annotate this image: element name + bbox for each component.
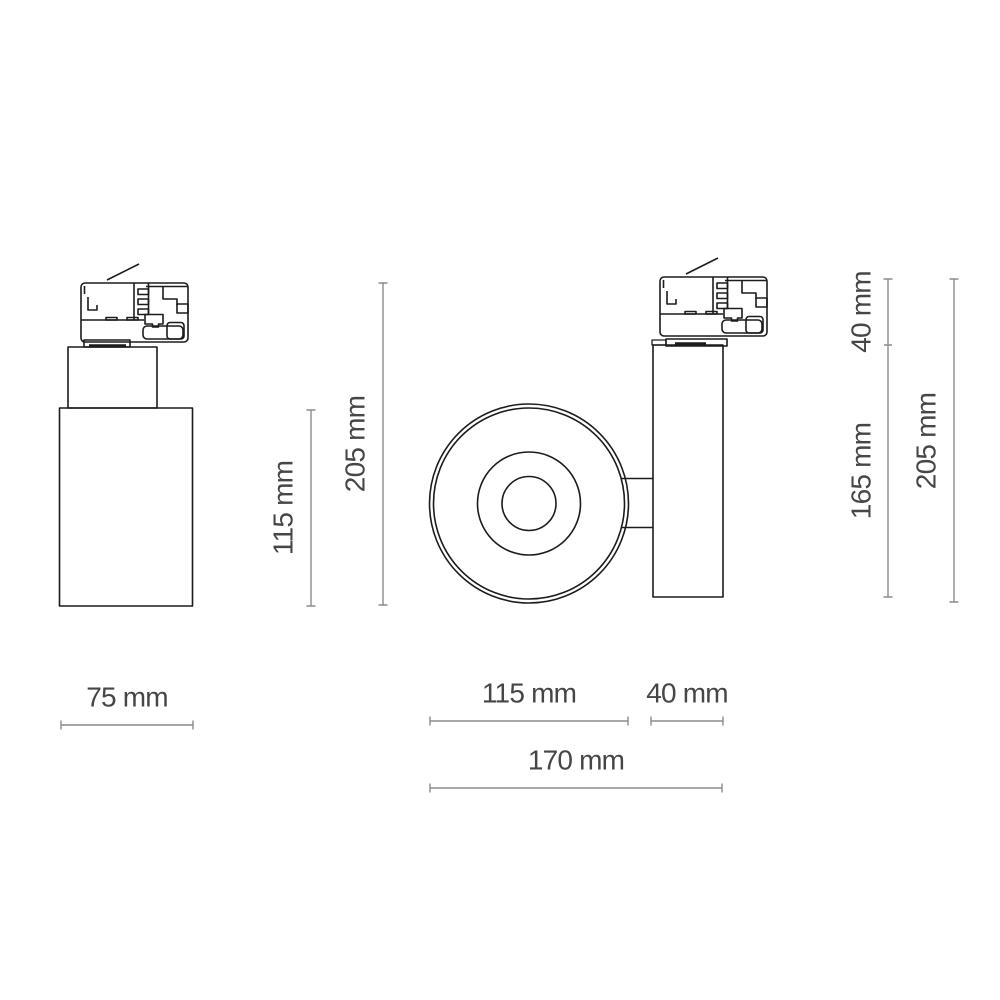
- dim-line-side-body-height: [307, 410, 316, 606]
- dim-line-side-overall-height: [379, 283, 388, 605]
- lens-reflector-ring: [478, 452, 581, 555]
- dim-line-front-arm-depth: [651, 717, 723, 726]
- spotlight-body-profile: [653, 345, 723, 597]
- lens-outer-rim: [430, 404, 629, 603]
- dim-label-front-head-diameter: 115 mm: [482, 678, 576, 709]
- front-view: [430, 404, 654, 603]
- dim-label-profile-overall-height: 205 mm: [911, 393, 942, 489]
- lens-inner-rim: [434, 408, 625, 599]
- track-adapter-icon: [81, 264, 188, 342]
- track-adapter-icon: [660, 258, 767, 336]
- dim-line-profile-overall-height: [950, 279, 959, 602]
- dim-line-side-body-width: [61, 721, 193, 730]
- side-view: [60, 264, 193, 606]
- dim-line-front-head-diameter: [430, 717, 628, 726]
- dim-line-front-overall-width: [430, 784, 722, 793]
- dim-label-front-arm-depth: 40 mm: [646, 678, 728, 709]
- dim-label-profile-housing-height: 165 mm: [846, 423, 877, 519]
- dim-label-side-body-width: 75 mm: [86, 682, 168, 713]
- dim-label-profile-adapter-height: 40 mm: [846, 271, 877, 353]
- drawing-canvas: 115 mm 205 mm 75 mm 115 mm 40 mm 170 mm …: [0, 0, 1000, 1000]
- dim-label-side-body-height: 115 mm: [268, 461, 299, 555]
- dim-line-profile-adapter-and-housing-height: [884, 279, 893, 597]
- spotlight-neck: [68, 347, 157, 408]
- spotlight-body-side: [60, 408, 193, 606]
- technical-drawing: 115 mm 205 mm 75 mm 115 mm 40 mm 170 mm …: [0, 0, 1000, 1000]
- lens-center: [502, 477, 556, 531]
- profile-view: [652, 258, 767, 597]
- dim-label-side-overall-height: 205 mm: [340, 396, 371, 492]
- dim-label-front-overall-width: 170 mm: [528, 745, 624, 776]
